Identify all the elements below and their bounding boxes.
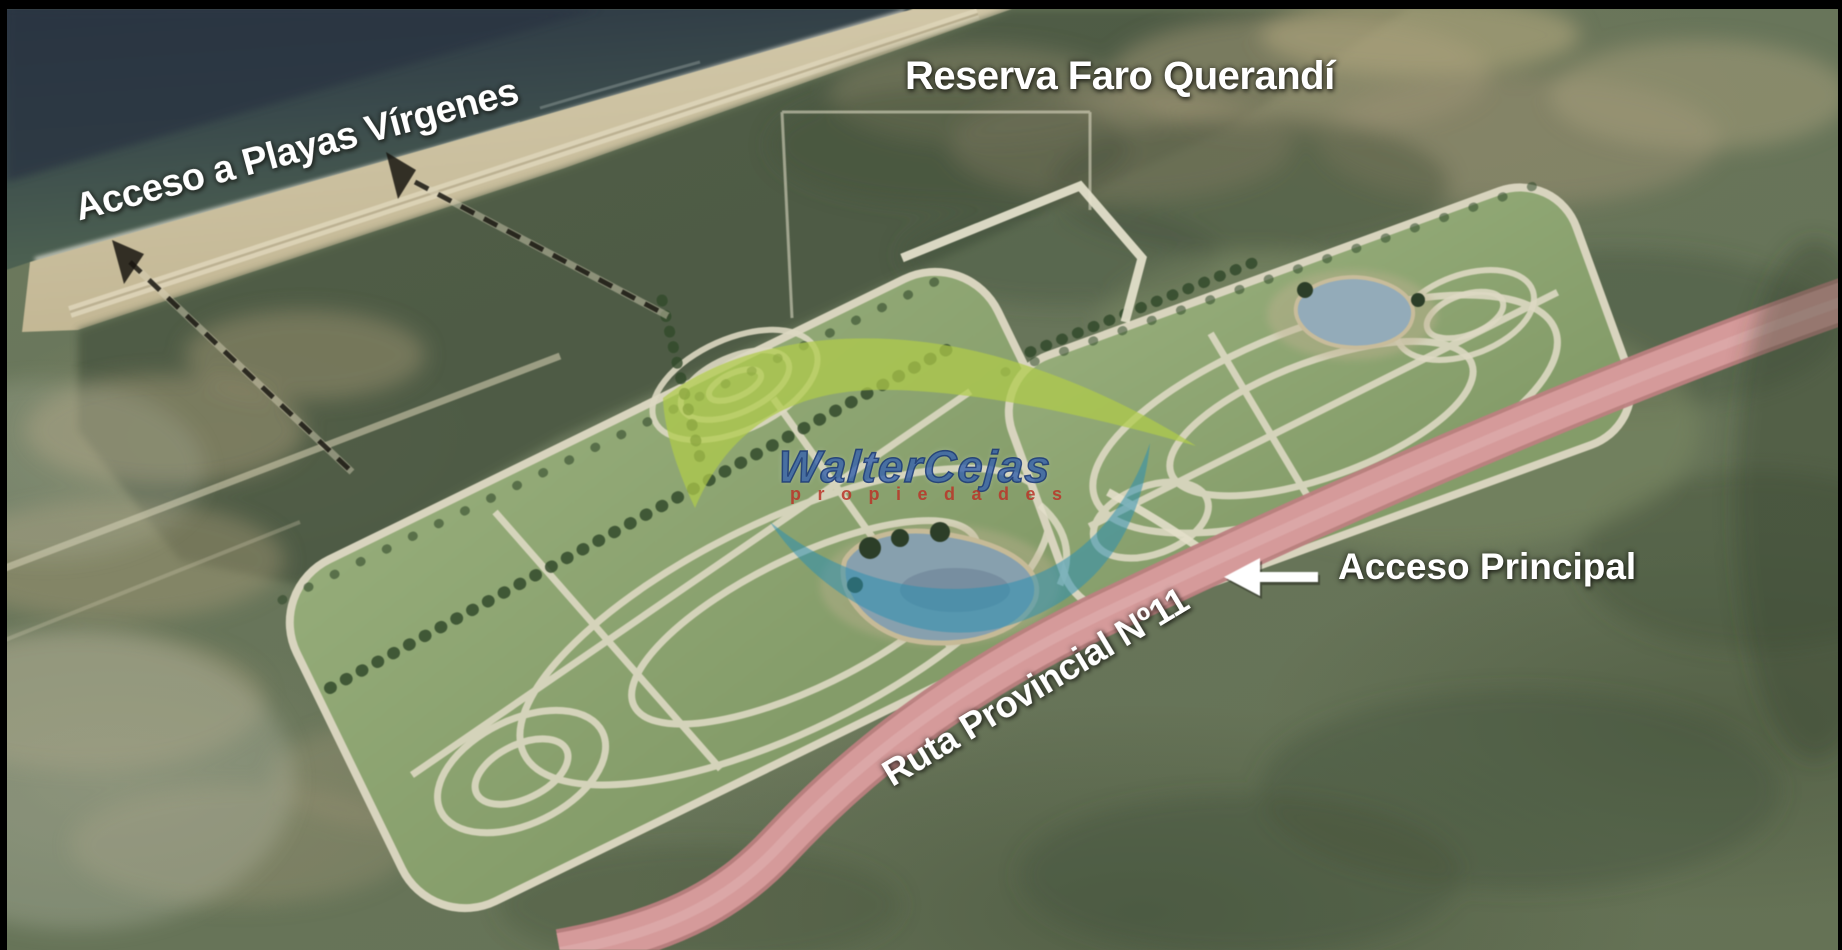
letterbox-right [1838, 0, 1842, 950]
letterbox-top [0, 0, 1842, 9]
watermark-tagline: propiedades [790, 484, 1079, 505]
label-reserva-faro-querandi: Reserva Faro Querandí [905, 54, 1335, 99]
letterbox-left [0, 0, 7, 950]
label-acceso-principal: Acceso Principal [1338, 546, 1636, 588]
aerial-masterplan-photo: Reserva Faro Querandí Acceso a Playas Ví… [0, 0, 1842, 950]
lake-right [1267, 270, 1437, 360]
